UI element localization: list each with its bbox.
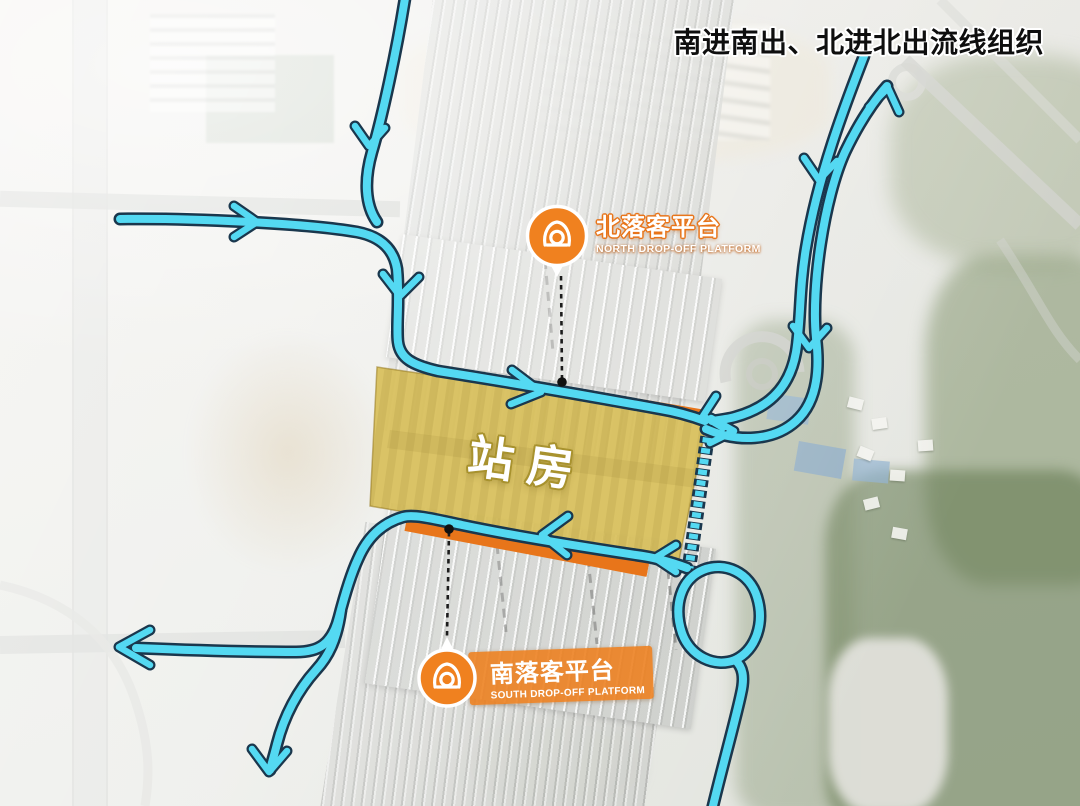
page-title: 南进南出、北进北出流线组织 (673, 21, 1044, 61)
south-pin-icon (419, 637, 475, 706)
north-pin-icon (528, 207, 587, 278)
south-leader-dot (444, 524, 454, 534)
north-leader-line (561, 276, 562, 378)
north-platform-label-en: NORTH DROP-OFF PLATFORM (596, 243, 761, 255)
flow-lines (119, 0, 899, 806)
north-platform-label-zh: 北落客平台 (596, 207, 761, 242)
station-flow-diagram: 南落客平台 SOUTH DROP-OFF PLATFORM (0, 0, 1080, 806)
south-leader-line (447, 532, 449, 636)
north-leader-dot (557, 377, 567, 387)
flow-overlay (0, 0, 1080, 806)
north-platform-label: 北落客平台 NORTH DROP-OFF PLATFORM (596, 207, 761, 255)
